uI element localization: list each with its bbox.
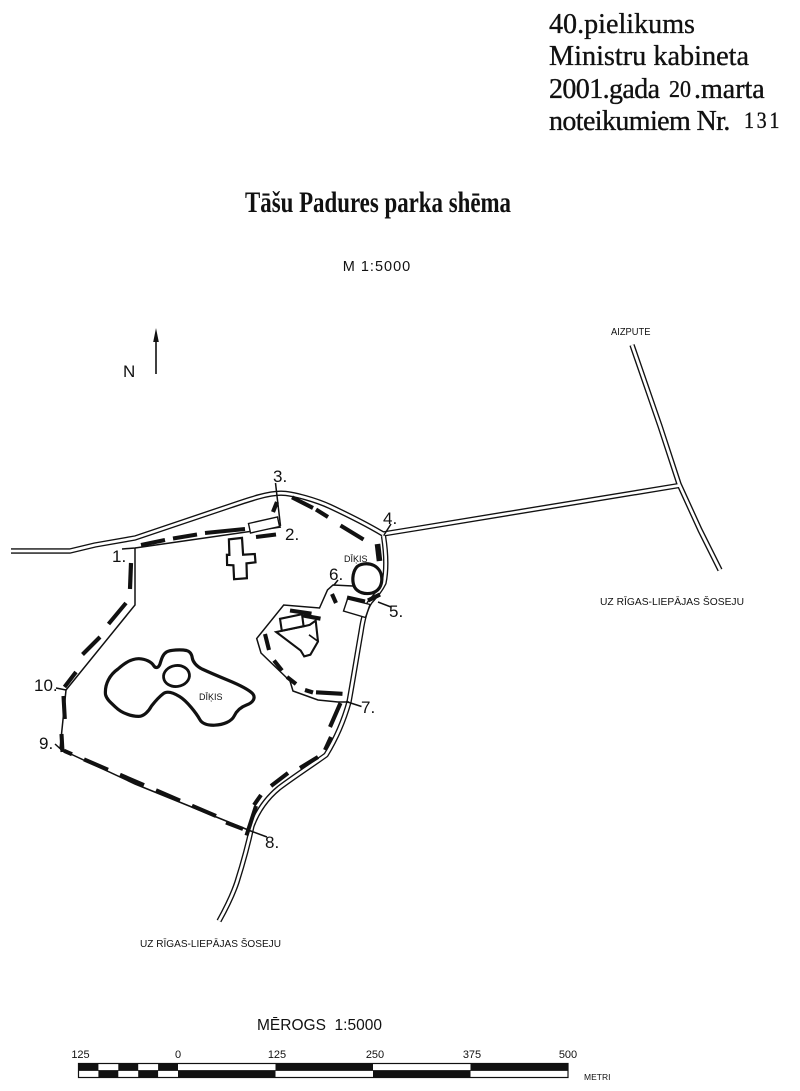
svg-text:Ministru kabineta: Ministru kabineta (549, 41, 750, 72)
svg-text:MĒROGS 1:5000: MĒROGS 1:5000 (257, 1016, 382, 1034)
svg-text:20: 20 (669, 77, 691, 103)
svg-text:2.: 2. (285, 525, 299, 544)
svg-text:.marta: .marta (694, 74, 765, 105)
svg-text:3.: 3. (273, 467, 287, 486)
svg-text:UZ RĪGAS-LIEPĀJAS ŠOSEJU: UZ RĪGAS-LIEPĀJAS ŠOSEJU (600, 595, 744, 608)
svg-text:6.: 6. (329, 565, 343, 584)
svg-text:4.: 4. (383, 509, 397, 528)
svg-text:131: 131 (744, 108, 782, 133)
svg-text:1.: 1. (112, 547, 126, 566)
svg-text:Tāšu Padures parka shēma: Tāšu Padures parka shēma (245, 186, 511, 219)
svg-text:N: N (123, 362, 135, 381)
svg-text:2001.gada: 2001.gada (549, 74, 661, 105)
svg-text:40.pielikums: 40.pielikums (549, 9, 695, 40)
svg-text:125: 125 (268, 1049, 286, 1061)
svg-text:125: 125 (71, 1049, 89, 1061)
svg-text:0: 0 (175, 1049, 181, 1061)
svg-text:250: 250 (366, 1049, 384, 1061)
svg-text:M 1:5000: M 1:5000 (343, 259, 411, 275)
svg-text:DĪĶIS: DĪĶIS (199, 692, 223, 702)
svg-text:UZ RĪGAS-LIEPĀJAS ŠOSEJU: UZ RĪGAS-LIEPĀJAS ŠOSEJU (140, 937, 281, 950)
svg-text:noteikumiem Nr.: noteikumiem Nr. (549, 106, 730, 137)
svg-text:7.: 7. (361, 698, 375, 717)
svg-text:375: 375 (463, 1049, 481, 1061)
svg-text:METRI: METRI (584, 1072, 610, 1082)
svg-text:10.: 10. (34, 676, 58, 695)
svg-text:5.: 5. (389, 602, 403, 621)
svg-text:8.: 8. (265, 833, 279, 852)
svg-text:AIZPUTE: AIZPUTE (611, 327, 651, 338)
svg-text:DĪĶIS: DĪĶIS (344, 554, 368, 564)
svg-text:9.: 9. (39, 734, 53, 753)
svg-text:500: 500 (559, 1049, 577, 1061)
